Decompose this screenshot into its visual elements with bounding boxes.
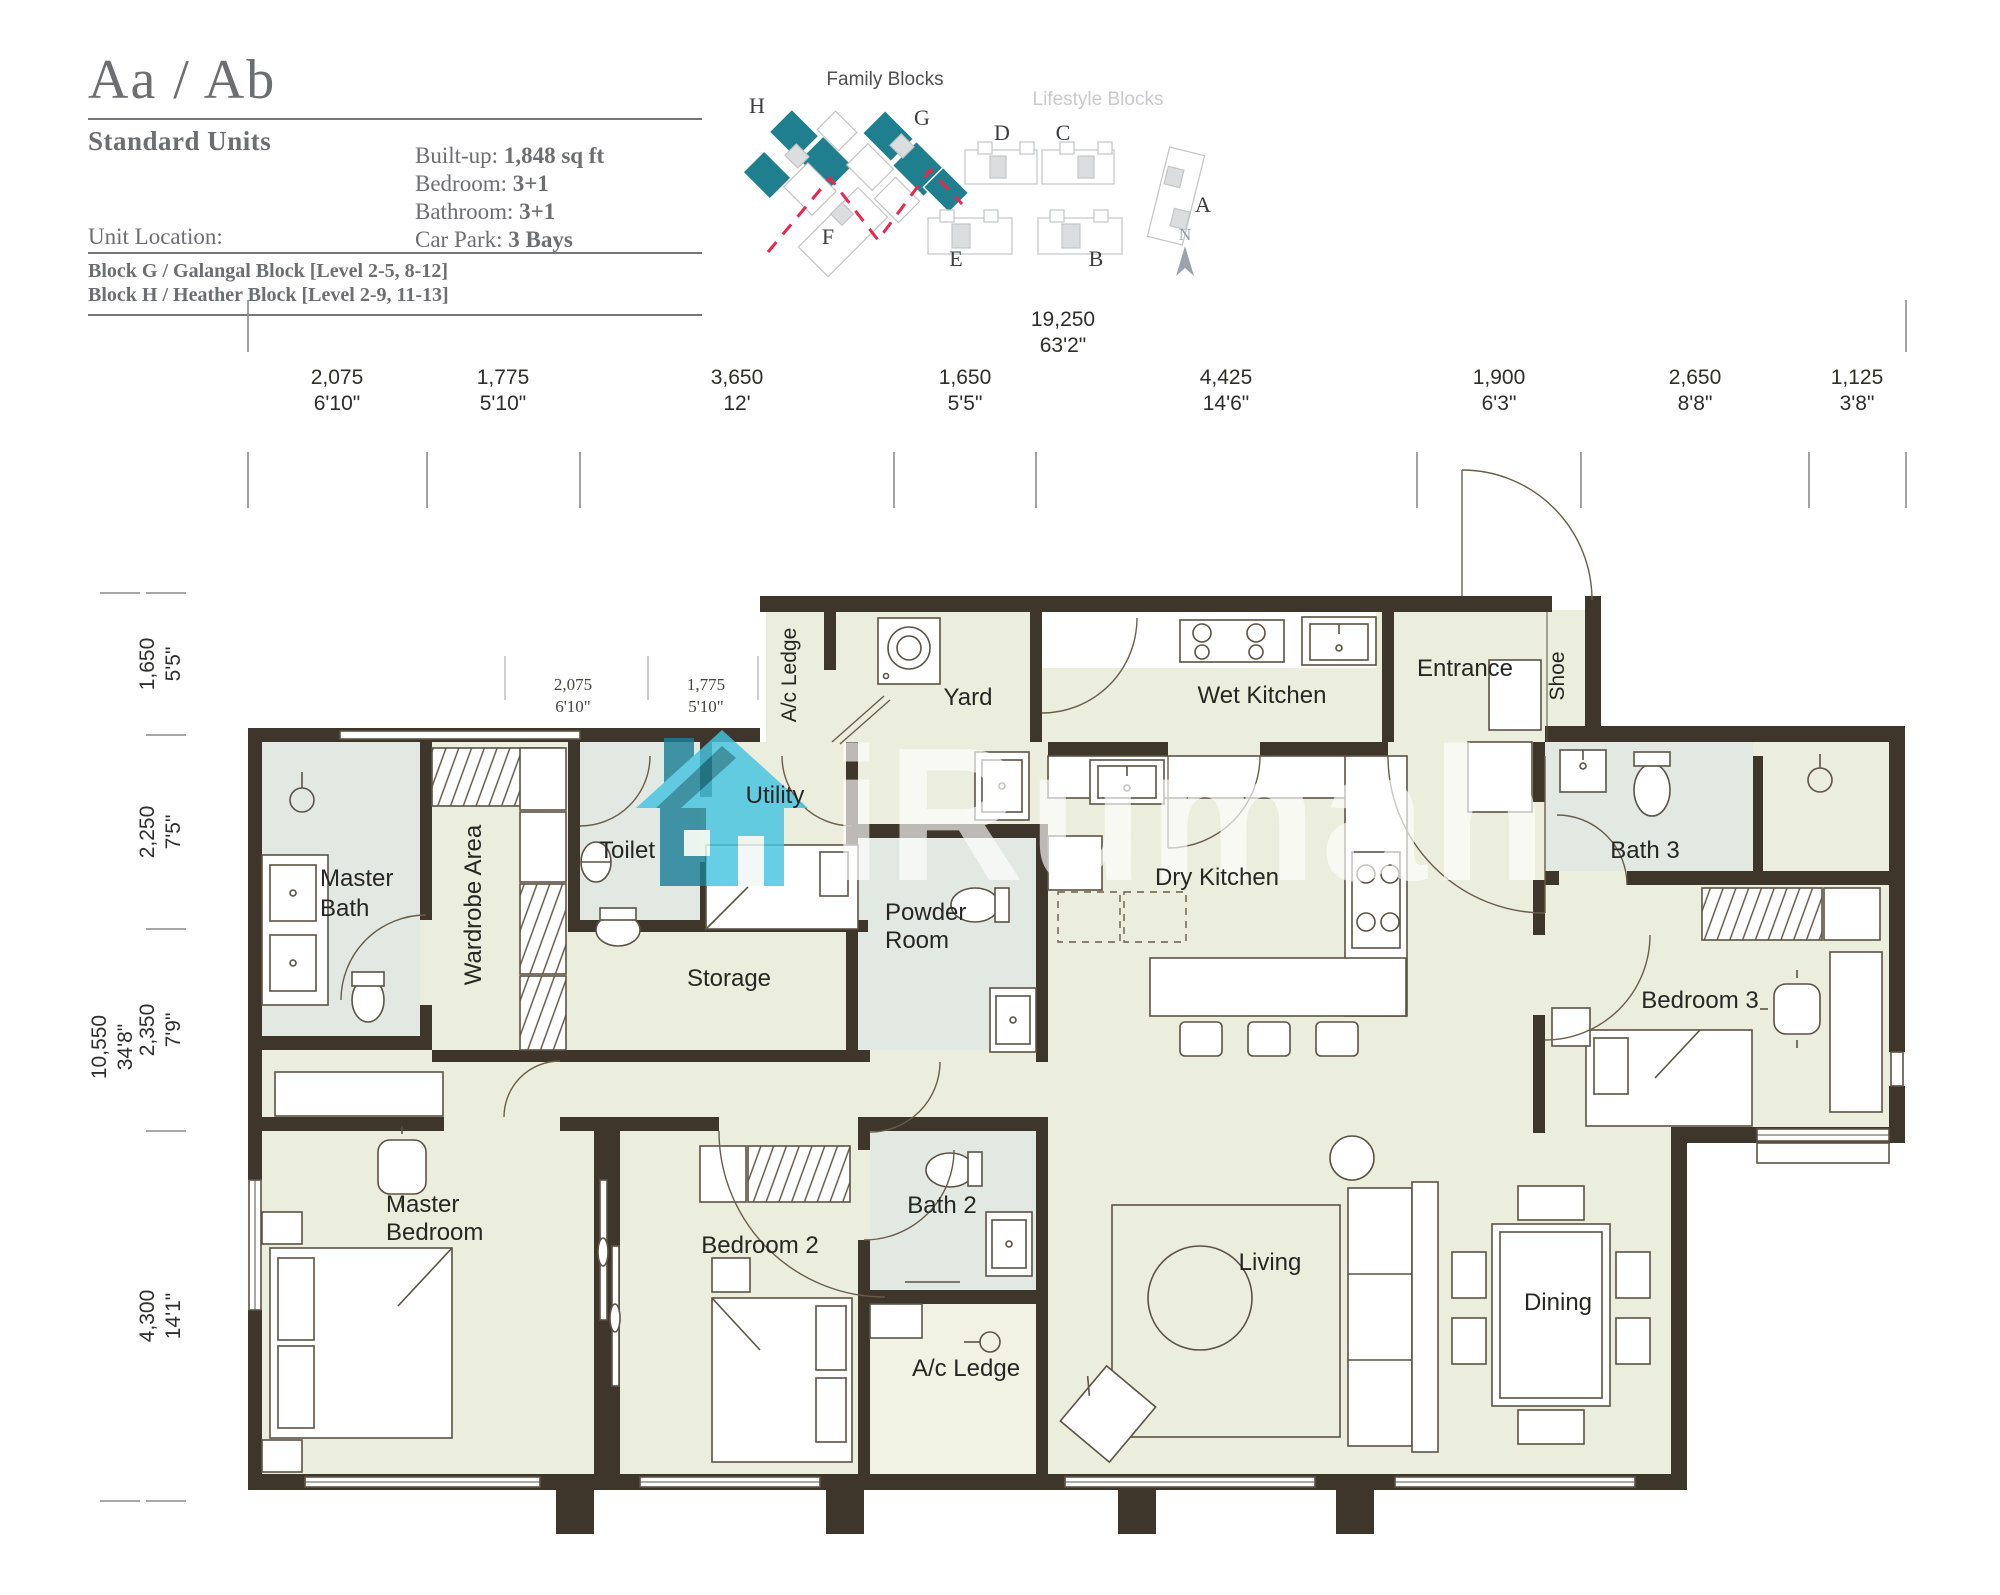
label-utility: Utility [746,782,805,809]
label-powder-1: Powder [885,899,966,926]
label-bath3: Bath 3 [1610,837,1679,864]
label-entrance: Entrance [1417,655,1513,682]
dim-left-labels: 1,650 5'5" 2,250 7'5" 2,350 7'9" 4,300 1… [136,638,185,1343]
svg-text:5'10": 5'10" [480,392,527,415]
floor-plan-page: Aa / Ab Standard Units Built-up: 1,848 s… [0,0,2000,1595]
svg-text:1,125: 1,125 [1831,366,1884,389]
dining-chair [1452,1318,1486,1364]
svg-text:3,650: 3,650 [711,366,764,389]
svg-text:4,425: 4,425 [1200,366,1253,389]
label-dining: Dining [1524,1289,1592,1316]
svg-text:4,300: 4,300 [136,1290,159,1343]
label-master-bedroom-1: Master [386,1191,459,1218]
dining-chair [1518,1186,1584,1220]
dining-chair [1518,1410,1584,1444]
site-letter-e: E [949,246,962,271]
label-wardrobe: Wardrobe Area [460,824,487,985]
label-shoe: Shoe [1546,651,1569,700]
svg-text:7'5": 7'5" [162,815,185,850]
svg-text:1,650: 1,650 [136,638,159,691]
svg-text:2,250: 2,250 [136,806,159,859]
svg-text:8'8": 8'8" [1678,392,1713,415]
stool [1248,1022,1290,1056]
site-letter-h: H [749,93,765,118]
label-storage: Storage [687,965,771,992]
lifestyle-blocks-label: Lifestyle Blocks [1033,89,1164,110]
bedroom3-wardrobe [1702,888,1822,940]
dining-chair [1452,1252,1486,1298]
svg-text:14'6": 14'6" [1203,392,1250,415]
powder-sink-icon [990,988,1036,1052]
dim-left-total-mm: 10,550 [88,1015,111,1079]
bedroom2-wardrobe [748,1146,850,1202]
label-dry-kitchen: Dry Kitchen [1155,864,1279,891]
dining-chair [1616,1318,1650,1364]
bedroom3-chair [1774,984,1820,1034]
site-block-h: H [743,93,857,215]
sofa [1348,1188,1412,1446]
svg-text:6'10": 6'10" [555,697,591,716]
svg-text:2,350: 2,350 [136,1004,159,1057]
label-master-bath-2: Bath [320,895,369,922]
svg-text:2,075: 2,075 [311,366,364,389]
master-bedroom-chair [378,1140,426,1194]
label-wet-kitchen: Wet Kitchen [1198,682,1327,709]
compass-arrow-icon [1176,246,1194,276]
compass-n-label: N [1179,225,1191,244]
label-master-bath-1: Master [320,865,393,892]
label-living: Living [1239,1249,1302,1276]
site-letter-f: F [822,224,834,249]
label-bath2: Bath 2 [907,1192,976,1219]
dining-ch air [1616,1252,1650,1298]
compass-north: N [1176,225,1194,276]
svg-text:1,775: 1,775 [687,675,725,694]
svg-text:5'5": 5'5" [162,647,185,682]
site-block-e: E [928,210,1012,271]
svg-text:1,775: 1,775 [477,366,530,389]
master-bath-vanity [262,855,328,1005]
bedroom3-bed [1586,1030,1752,1126]
dim-left-total-ft: 34'8" [114,1024,137,1071]
master-bedroom-closet [275,1072,443,1116]
family-blocks-label: Family Blocks [826,69,943,90]
site-block-dc: D C [965,120,1114,184]
stool [1180,1022,1222,1056]
svg-text:5'10": 5'10" [688,697,724,716]
label-bedroom2: Bedroom 2 [701,1232,818,1259]
bath3-wc-icon [1634,764,1670,816]
stool [1316,1022,1358,1056]
site-letter-c: C [1056,120,1071,145]
svg-text:5'5": 5'5" [948,392,983,415]
svg-text:6'10": 6'10" [314,392,361,415]
dim-top-ticks [248,452,1906,508]
svg-text:14'1": 14'1" [162,1293,185,1340]
bath2-sink-icon [986,1212,1032,1276]
label-toilet: Toilet [599,837,655,864]
label-powder-2: Room [885,927,949,954]
dim-top-labels: 2,075 6'10" 1,775 5'10" 3,650 12' 1,650 … [311,366,1884,415]
bedroom2-bed [712,1298,852,1462]
site-letter-a: A [1195,192,1211,217]
dim-top-total-ft: 63'2" [1040,334,1087,357]
site-letter-d: D [994,120,1010,145]
svg-text:6'3": 6'3" [1482,392,1517,415]
label-ac-ledge-top: A/c Ledge [778,628,801,723]
svg-text:12': 12' [723,392,750,415]
svg-text:1,650: 1,650 [939,366,992,389]
floor-lamp-icon [1330,1136,1374,1180]
svg-text:3'8": 3'8" [1840,392,1875,415]
svg-text:7'9": 7'9" [162,1013,185,1048]
site-block-b: B [1038,210,1122,271]
bath2-wc-icon [926,1153,974,1187]
label-bedroom3: Bedroom 3 [1641,987,1758,1014]
kitchen-island [1150,958,1406,1016]
floor-plan: iRumah A/c Ledge Yard Wet Kitchen Entran… [248,470,1905,1534]
svg-text:2,650: 2,650 [1669,366,1722,389]
site-letter-g: G [914,105,930,130]
site-letter-b: B [1089,246,1104,271]
dim-top-total-mm: 19,250 [1031,308,1095,331]
svg-text:1,900: 1,900 [1473,366,1526,389]
svg-text:2,075: 2,075 [554,675,592,694]
label-master-bedroom-2: Bedroom [386,1219,483,1246]
floor-plan-canvas: Family Blocks Lifestyle Blocks H G [0,0,2000,1595]
bedroom3-desk [1830,952,1882,1112]
label-ac-ledge-bottom: A/c Ledge [912,1355,1020,1382]
label-yard: Yard [944,684,993,711]
site-key-plan: Family Blocks Lifestyle Blocks H G [743,69,1211,277]
